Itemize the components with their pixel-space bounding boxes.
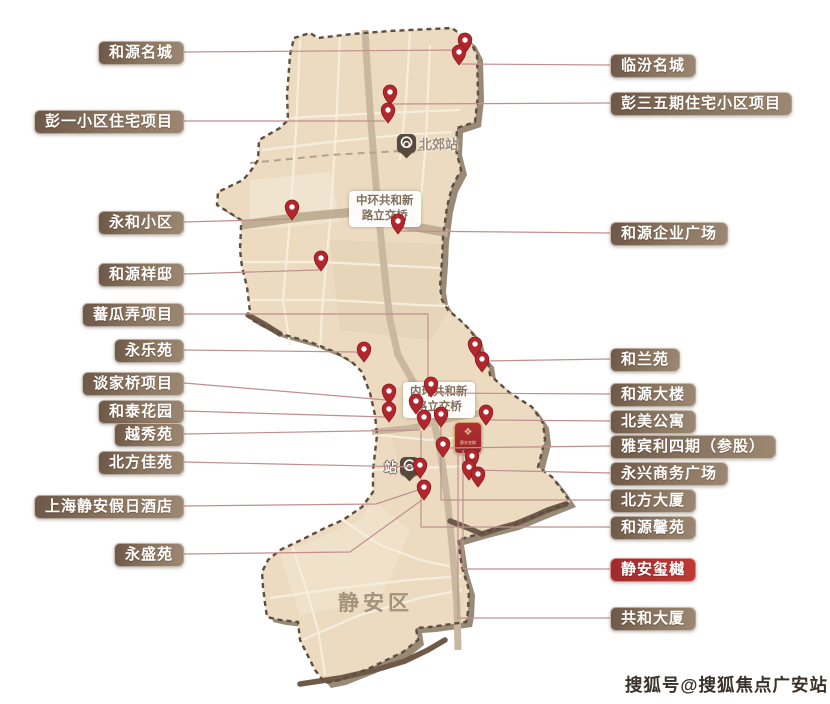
district-name-label: 静安区 (338, 591, 413, 615)
road-label-inner-ring: 内环共和新 路立交桥 (403, 382, 475, 418)
railway-station-icon (397, 134, 416, 153)
gold-seal-icon: ❖ (464, 428, 473, 438)
project-callout[interactable]: 静安玺樾 (610, 558, 696, 582)
project-callout[interactable]: 彭一小区住宅项目 (34, 110, 184, 134)
project-callout[interactable]: 永兴商务广场 (610, 462, 728, 486)
road-label-mid-ring: 中环共和新 路立交桥 (349, 191, 421, 227)
project-callout[interactable]: 谈家桥项目 (82, 372, 184, 396)
project-callout[interactable]: 彭三五期住宅小区项目 (610, 92, 792, 116)
project-callout[interactable]: 北方佳苑 (98, 451, 184, 475)
project-callout[interactable]: 和源大楼 (610, 383, 696, 407)
project-callout[interactable]: 永乐苑 (114, 339, 184, 363)
project-callout[interactable]: 和源名城 (98, 41, 184, 65)
station-north: 北郊站 (397, 134, 458, 153)
logo-marker-title: 静安玺樾 (460, 441, 476, 445)
project-callout[interactable]: 北方大厦 (610, 489, 696, 513)
project-callout[interactable]: 和源企业广场 (610, 222, 728, 246)
project-callout[interactable]: 和泰花园 (98, 400, 184, 424)
project-callout[interactable]: 和兰苑 (610, 348, 680, 372)
project-callout[interactable]: 越秀苑 (114, 423, 184, 447)
road-label-text: 路立交桥 (362, 210, 408, 222)
project-callout[interactable]: 上海静安假日酒店 (34, 495, 184, 519)
road-label-text: 中环共和新 (356, 195, 414, 207)
station-name: 站 (384, 457, 397, 476)
project-callout[interactable]: 和源馨苑 (610, 516, 696, 540)
railway-station-icon (400, 457, 419, 476)
project-logo-marker[interactable]: ❖ 静安玺樾 (454, 422, 482, 454)
project-callout[interactable]: 共和大厦 (610, 607, 696, 631)
project-callout[interactable]: 雅宾利四期（参股） (610, 435, 776, 459)
project-callout[interactable]: 永盛苑 (114, 543, 184, 567)
project-callout[interactable]: 北美公寓 (610, 410, 696, 434)
station-name: 北郊站 (419, 134, 458, 153)
jingan-project-map: 静安区 中环共和新 路立交桥 内环共和新 路立交桥 北郊站 站 ❖ 静安玺樾 (0, 0, 830, 704)
watermark: 搜狐号@搜狐焦点广安站 (625, 672, 828, 697)
station-south: 站 (384, 457, 419, 476)
project-callout[interactable]: 临汾名城 (610, 54, 696, 78)
project-callout[interactable]: 永和小区 (98, 211, 184, 235)
road-label-text: 路立交桥 (416, 401, 462, 413)
road-label-text: 内环共和新 (410, 386, 468, 398)
project-callout[interactable]: 蕃瓜弄项目 (82, 303, 184, 327)
district-area (217, 28, 570, 683)
project-callout[interactable]: 和源祥邸 (98, 263, 184, 287)
